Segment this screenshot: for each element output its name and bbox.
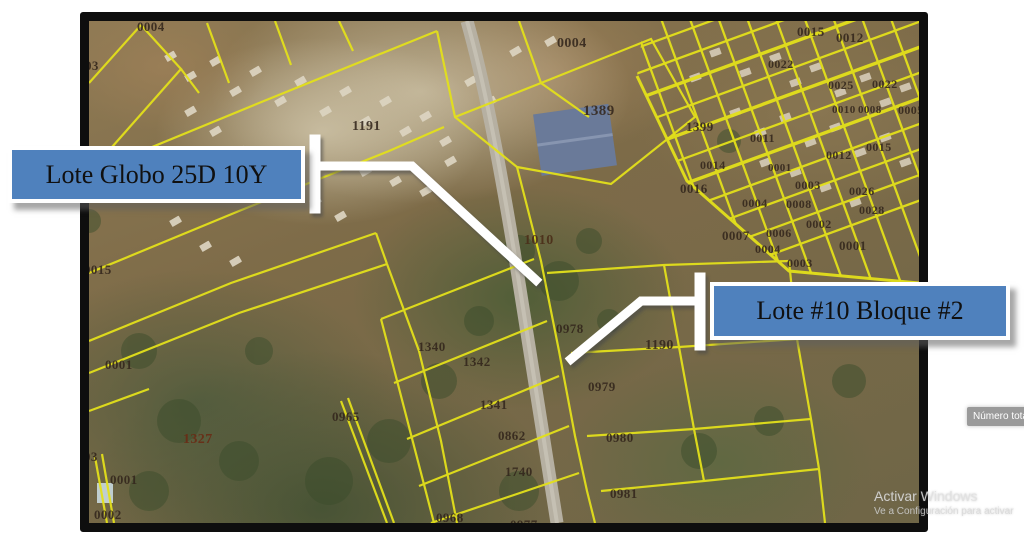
map-frame: 0004031191000413891399001500120022002500… bbox=[80, 12, 928, 532]
callout-lote-globo-label: Lote Globo 25D 10Y bbox=[46, 160, 268, 190]
screenshot-root: 0004031191000413891399001500120022002500… bbox=[0, 0, 1024, 540]
callout-lote-10-bloque-2-label: Lote #10 Bloque #2 bbox=[756, 296, 963, 326]
parcel-boundaries bbox=[89, 21, 919, 523]
numero-total-tooltip-text: Número tota bbox=[973, 411, 1024, 422]
numero-total-tooltip: Número tota bbox=[967, 407, 1024, 426]
callout-lote-globo: Lote Globo 25D 10Y bbox=[8, 146, 305, 203]
callout-lote-10-bloque-2: Lote #10 Bloque #2 bbox=[710, 282, 1010, 340]
warehouse-building bbox=[533, 104, 617, 176]
houses-top-right bbox=[689, 47, 912, 207]
map-graphics bbox=[89, 21, 919, 523]
satellite-map[interactable]: 0004031191000413891399001500120022002500… bbox=[89, 21, 919, 523]
